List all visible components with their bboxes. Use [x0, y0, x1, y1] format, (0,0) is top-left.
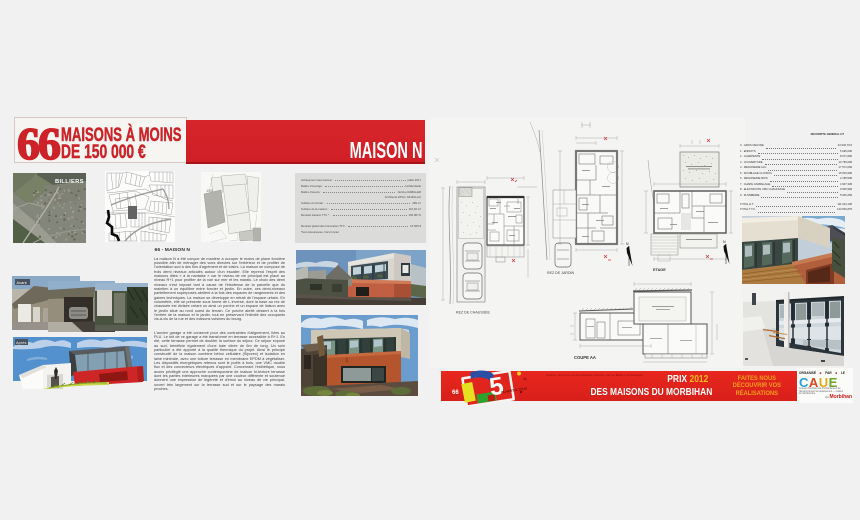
svg-text:COUPE AA: COUPE AA: [574, 355, 596, 360]
svg-text:Après: Après: [16, 340, 26, 345]
svg-text:Avant: Avant: [17, 280, 28, 285]
svg-text:REZ DE JARDIN: REZ DE JARDIN: [547, 271, 575, 275]
svg-text:1: 1: [346, 358, 349, 364]
svg-text:155: 155: [206, 188, 213, 193]
svg-text:REZ DE CHAUSSÉE: REZ DE CHAUSSÉE: [456, 310, 491, 315]
svg-text:ETAGE: ETAGE: [653, 268, 666, 272]
svg-text:BILLIERS: BILLIERS: [55, 179, 84, 185]
